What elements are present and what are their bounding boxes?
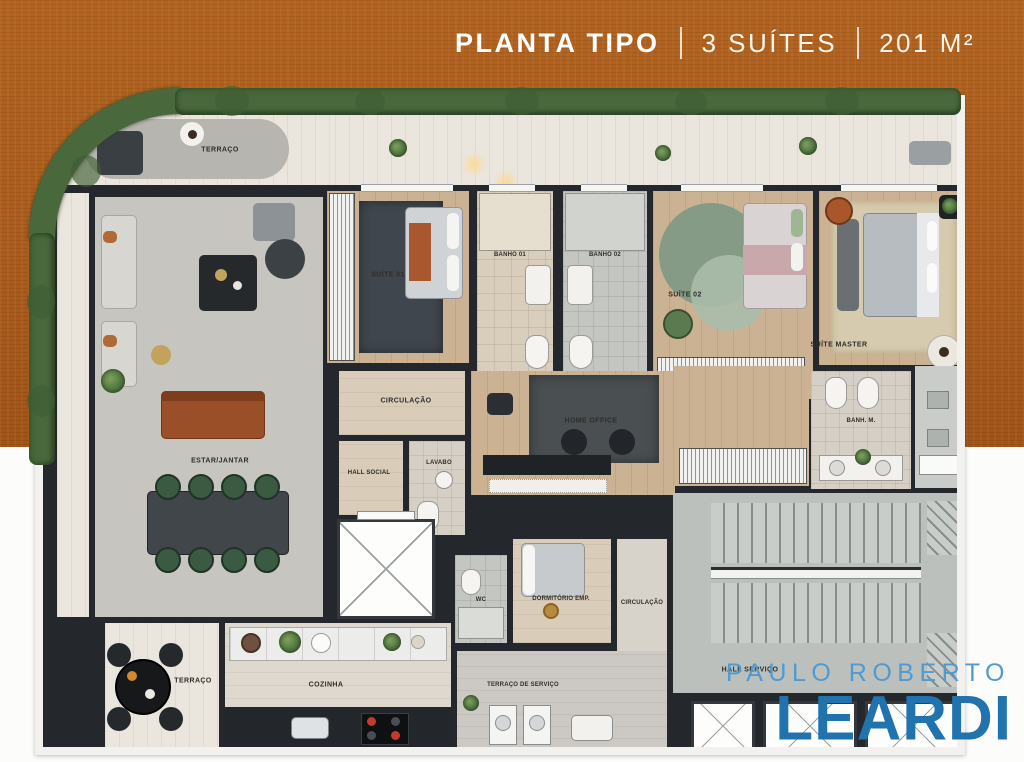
desk-icon	[483, 455, 611, 475]
kitchen-counter-bottom	[225, 707, 451, 747]
chaise-icon	[837, 219, 859, 311]
plant-icon	[383, 633, 401, 651]
shower	[458, 607, 504, 639]
basin-icon	[875, 460, 891, 476]
toilet-icon	[461, 569, 481, 595]
title-divider	[857, 27, 859, 59]
gold-table-icon	[151, 345, 171, 365]
hedge-bush	[355, 89, 385, 115]
wardrobe	[329, 193, 355, 361]
hedge-bush	[27, 285, 55, 319]
shelf	[927, 429, 949, 447]
room-label-suite-01: SUÍTE 01	[371, 272, 405, 279]
plate-icon	[145, 689, 155, 699]
decor-icon	[233, 281, 242, 290]
shelf	[927, 391, 949, 409]
hedge-bush	[675, 89, 707, 115]
shower	[565, 193, 645, 251]
dining-chair-icon	[254, 474, 280, 500]
room-label-lavabo: LAVABO	[426, 460, 452, 466]
dining-chair-icon	[221, 547, 247, 573]
desk-chair-icon	[609, 429, 635, 455]
washer-drum-icon	[529, 715, 545, 731]
decor-icon	[215, 269, 227, 281]
brand-logo-name: LEARDI	[726, 687, 1012, 750]
toilet-icon	[825, 377, 847, 409]
room-label-circulacao-servico: CIRCULAÇÃO	[621, 600, 663, 606]
stairs	[711, 583, 921, 643]
pillow-icon	[791, 243, 803, 271]
burner-icon	[391, 717, 400, 726]
room-label-dormitorio-emp: DORMITÓRIO EMP.	[532, 596, 590, 602]
room-label-home-office: HOME OFFICE	[564, 418, 617, 425]
outdoor-chair-icon	[107, 707, 131, 731]
hedge-bush	[27, 385, 55, 417]
dining-chair-icon	[188, 474, 214, 500]
window	[841, 184, 937, 192]
room-label-banho-01: BANHO 01	[494, 252, 526, 258]
hedge-bush	[505, 87, 539, 115]
cabinet-icon	[487, 393, 513, 415]
pillow-icon	[791, 209, 803, 237]
armchair-icon	[825, 197, 853, 225]
washer-drum-icon	[495, 715, 511, 731]
pillow-icon	[523, 545, 535, 595]
plate-icon	[411, 635, 425, 649]
sink	[525, 265, 551, 305]
dining-chair-icon	[254, 547, 280, 573]
balcony-strip	[335, 109, 957, 185]
plant-icon	[655, 145, 671, 161]
burner-icon	[367, 717, 376, 726]
room-label-wc: WC	[476, 597, 486, 603]
suites-count: 3 SUÍTES	[702, 28, 838, 59]
swivel-chair-icon	[265, 239, 305, 279]
lounge-chair-icon	[909, 141, 951, 165]
plate-icon	[311, 633, 331, 653]
blanket-icon	[409, 223, 431, 281]
wardrobe	[679, 448, 807, 484]
dining-table-icon	[147, 491, 289, 555]
brand-logo: PAULO ROBERTO LEARDI	[726, 661, 1012, 750]
stairs	[711, 503, 921, 563]
chair-icon	[663, 309, 693, 339]
plant-icon	[101, 369, 125, 393]
hedge	[29, 233, 55, 465]
hedge	[29, 88, 181, 240]
plant-icon	[799, 137, 817, 155]
cushion-icon	[103, 335, 117, 347]
pendant-light-icon	[461, 151, 487, 177]
burner-icon	[391, 731, 400, 740]
dining-chair-icon	[188, 547, 214, 573]
sofa-back-icon	[161, 391, 265, 401]
room-label-terraco-servico: TERRAÇO DE SERVIÇO	[487, 682, 559, 688]
stairs-corner	[927, 501, 957, 555]
window	[361, 184, 453, 192]
room-hall-social	[339, 441, 403, 515]
hedge-bush	[71, 155, 101, 187]
window	[581, 184, 627, 192]
room-label-estar-jantar: ESTAR/JANTAR	[191, 458, 249, 465]
room-label-banho-02: BANHO 02	[589, 252, 621, 258]
dining-chair-icon	[155, 547, 181, 573]
pillow-icon	[447, 213, 459, 249]
plant-icon	[855, 449, 871, 465]
dining-chair-icon	[221, 474, 247, 500]
header-title-bar: PLANTA TIPO 3 SUÍTES 201 M²	[455, 27, 975, 59]
outdoor-table-icon	[115, 659, 171, 715]
bowl-icon	[241, 633, 261, 653]
sink	[567, 265, 593, 305]
outdoor-chair-icon	[107, 643, 131, 667]
desk-chair-icon	[561, 429, 587, 455]
room-label-suite-master: SUÍTE MASTER	[811, 342, 868, 349]
brand-logo-top-line: PAULO ROBERTO	[726, 661, 1010, 686]
page-title: PLANTA TIPO	[455, 28, 660, 59]
pillow-icon	[927, 221, 937, 251]
room-label-terraco-superior: TERRAÇO	[201, 147, 238, 154]
room-label-hall-social: HALL SOCIAL	[348, 470, 390, 476]
basin-icon	[829, 460, 845, 476]
bidet-icon	[857, 377, 879, 409]
window	[681, 184, 763, 192]
patterned-rug	[489, 479, 607, 493]
plant-icon	[463, 695, 479, 711]
console-table-icon	[199, 255, 257, 311]
room-label-suite-02: SUÍTE 02	[668, 292, 702, 299]
shower	[479, 193, 551, 251]
plant-icon	[389, 139, 407, 157]
kitchen-sink	[291, 717, 329, 739]
laundry-tank-icon	[571, 715, 613, 741]
toilet-icon	[525, 335, 549, 369]
toilet-icon	[569, 335, 593, 369]
hedge-bush	[825, 87, 859, 115]
plant-icon	[279, 631, 301, 653]
vase-icon	[939, 347, 949, 357]
cup-icon	[188, 130, 197, 139]
plate-icon	[127, 671, 137, 681]
round-rug	[543, 603, 559, 619]
hedge-bush	[215, 86, 249, 116]
dining-chair-icon	[155, 474, 181, 500]
armchair-icon	[253, 203, 295, 241]
sink	[435, 471, 453, 489]
room-label-banho-master: BANH. M.	[847, 418, 876, 424]
burner-icon	[367, 731, 376, 740]
pillow-icon	[447, 255, 459, 291]
plant-icon	[942, 198, 957, 214]
elevator-door	[357, 511, 415, 520]
outdoor-chair-icon	[159, 643, 183, 667]
room-label-circulacao: CIRCULAÇÃO	[380, 398, 431, 405]
outdoor-chair-icon	[159, 707, 183, 731]
floor-plan: TERRAÇO ESTAR/JANTAR	[35, 95, 965, 755]
left-planter-strip	[57, 193, 89, 617]
window	[489, 184, 535, 192]
area-value: 201 M²	[879, 28, 975, 59]
stair-rail	[711, 567, 921, 579]
room-label-terraco-inferior: TERRAÇO	[174, 678, 211, 685]
room-label-cozinha: COZINHA	[309, 682, 344, 689]
title-divider	[680, 27, 682, 59]
service-elevator-door	[919, 455, 957, 475]
private-elevator	[337, 519, 435, 619]
pillow-icon	[927, 263, 937, 293]
